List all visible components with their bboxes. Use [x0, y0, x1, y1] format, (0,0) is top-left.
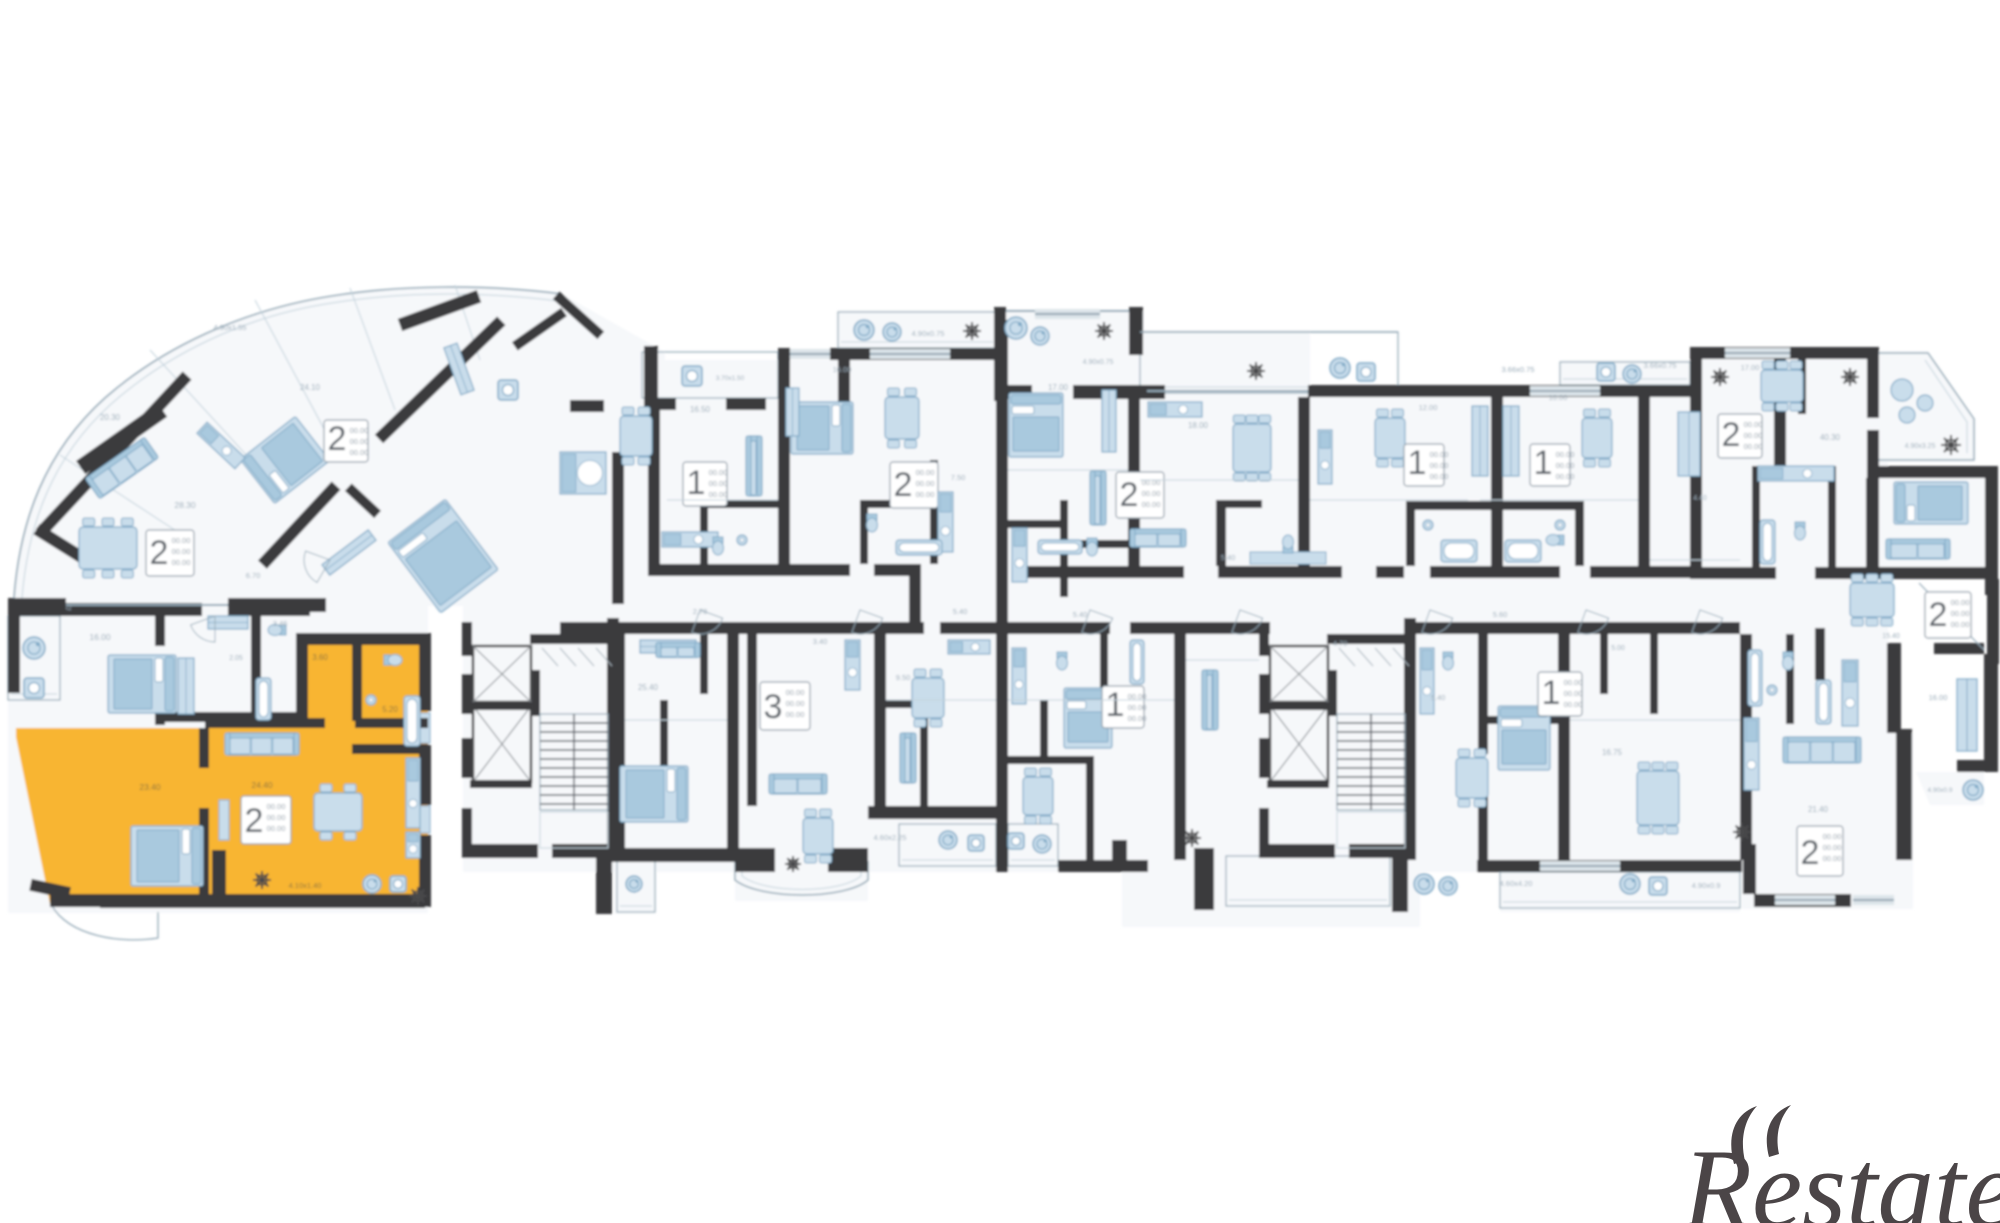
- svg-text:20.30: 20.30: [100, 413, 121, 422]
- svg-text:00.00: 00.00: [1951, 598, 1970, 607]
- svg-text:2: 2: [894, 466, 913, 504]
- svg-text:16.50: 16.50: [690, 405, 711, 414]
- svg-text:15.40: 15.40: [1882, 633, 1900, 640]
- svg-text:3.46: 3.46: [273, 619, 288, 628]
- svg-text:3.70x1.50: 3.70x1.50: [716, 375, 745, 382]
- svg-text:2: 2: [1120, 476, 1139, 514]
- svg-text:3.40: 3.40: [813, 637, 828, 646]
- svg-text:17.00: 17.00: [1048, 383, 1069, 392]
- svg-text:4.10x1.40: 4.10x1.40: [289, 881, 322, 890]
- svg-text:00.00: 00.00: [916, 490, 935, 499]
- svg-text:00.00: 00.00: [1823, 854, 1842, 863]
- svg-text:00.00: 00.00: [916, 468, 935, 477]
- svg-text:1: 1: [687, 464, 706, 502]
- svg-text:00.00: 00.00: [1430, 450, 1449, 459]
- svg-text:00.00: 00.00: [267, 802, 286, 811]
- svg-text:00.00: 00.00: [350, 437, 369, 446]
- svg-text:10.00: 10.00: [1549, 393, 1568, 402]
- svg-text:5.40: 5.40: [1431, 693, 1446, 702]
- svg-text:16.00: 16.00: [1929, 693, 1948, 702]
- svg-text:00.00: 00.00: [786, 688, 805, 697]
- svg-text:00.00: 00.00: [916, 479, 935, 488]
- svg-text:00.00: 00.00: [709, 468, 728, 477]
- svg-text:00.00: 00.00: [1564, 678, 1583, 687]
- svg-text:24.10: 24.10: [300, 383, 321, 392]
- svg-text:00.00: 00.00: [786, 699, 805, 708]
- svg-text:00.00: 00.00: [350, 448, 369, 457]
- svg-text:16.00: 16.00: [89, 632, 111, 642]
- svg-text:25.40: 25.40: [638, 683, 659, 692]
- svg-text:1: 1: [1106, 686, 1125, 724]
- svg-text:4.70: 4.70: [1333, 639, 1348, 648]
- svg-text:21.40: 21.40: [1808, 805, 1829, 814]
- svg-text:6.70: 6.70: [246, 571, 261, 580]
- svg-text:18.00: 18.00: [1188, 421, 1209, 430]
- svg-text:9.50: 9.50: [896, 673, 911, 682]
- svg-text:5.60: 5.60: [1493, 610, 1508, 619]
- svg-text:5.00: 5.00: [1611, 645, 1625, 652]
- svg-text:00.00: 00.00: [1556, 472, 1575, 481]
- svg-text:4.90x0.75: 4.90x0.75: [912, 329, 945, 338]
- svg-text:4.60x2.25: 4.60x2.25: [874, 833, 907, 842]
- svg-text:1: 1: [1542, 674, 1561, 712]
- svg-text:3: 3: [764, 688, 783, 726]
- svg-text:00.00: 00.00: [1142, 478, 1161, 487]
- svg-text:00.00: 00.00: [1142, 489, 1161, 498]
- svg-text:00.00: 00.00: [1556, 450, 1575, 459]
- svg-text:00.00: 00.00: [709, 490, 728, 499]
- svg-text:00.00: 00.00: [1951, 609, 1970, 618]
- svg-text:00.00: 00.00: [1744, 431, 1763, 440]
- svg-text:2: 2: [1929, 596, 1948, 634]
- svg-text:4.60x4.20: 4.60x4.20: [1500, 879, 1533, 888]
- svg-text:16.00: 16.00: [833, 365, 852, 374]
- svg-text:00.00: 00.00: [267, 813, 286, 822]
- svg-text:3.66x0.75: 3.66x0.75: [1502, 365, 1535, 374]
- svg-text:4.90x1.55: 4.90x1.55: [214, 323, 247, 332]
- svg-text:3.66x0.75: 3.66x0.75: [1644, 361, 1677, 370]
- svg-text:4.40: 4.40: [1693, 495, 1707, 502]
- svg-text:23.40: 23.40: [139, 782, 161, 792]
- svg-text:00.00: 00.00: [786, 710, 805, 719]
- svg-text:2.78: 2.78: [693, 607, 708, 616]
- svg-text:2: 2: [1801, 834, 1820, 872]
- svg-text:12.00: 12.00: [1419, 403, 1438, 412]
- svg-text:2: 2: [328, 420, 347, 458]
- svg-text:1: 1: [1534, 444, 1553, 482]
- svg-text:1: 1: [1408, 444, 1427, 482]
- svg-text:00.00: 00.00: [1744, 442, 1763, 451]
- svg-text:00.00: 00.00: [1430, 472, 1449, 481]
- svg-text:3.60: 3.60: [312, 653, 328, 662]
- svg-text:00.00: 00.00: [172, 558, 191, 567]
- svg-text:5.40: 5.40: [953, 607, 968, 616]
- svg-text:4.90x0.9: 4.90x0.9: [1692, 881, 1721, 890]
- svg-text:00.00: 00.00: [1128, 714, 1147, 723]
- svg-text:00.00: 00.00: [1430, 461, 1449, 470]
- svg-text:Restate: Restate: [1682, 1127, 2000, 1223]
- svg-text:00.00: 00.00: [350, 426, 369, 435]
- svg-text:00.00: 00.00: [1142, 500, 1161, 509]
- svg-text:00.00: 00.00: [709, 479, 728, 488]
- svg-text:00.00: 00.00: [1556, 461, 1575, 470]
- svg-text:00.00: 00.00: [1951, 620, 1970, 629]
- svg-text:4.90x3.25: 4.90x3.25: [1905, 443, 1936, 450]
- svg-text:5.40: 5.40: [1073, 610, 1088, 619]
- svg-text:17.00: 17.00: [1741, 363, 1760, 372]
- svg-text:2: 2: [1722, 416, 1741, 454]
- svg-text:00.00: 00.00: [1823, 843, 1842, 852]
- svg-text:00.00: 00.00: [1564, 700, 1583, 709]
- svg-text:00.00: 00.00: [1744, 420, 1763, 429]
- svg-text:24.40: 24.40: [251, 780, 273, 790]
- svg-text:7.50: 7.50: [951, 473, 966, 482]
- svg-text:00.00: 00.00: [1823, 832, 1842, 841]
- svg-text:16.75: 16.75: [1602, 748, 1623, 757]
- svg-text:2: 2: [245, 802, 264, 840]
- svg-text:28.30: 28.30: [174, 500, 196, 510]
- svg-text:4.90x0.75: 4.90x0.75: [1083, 359, 1114, 366]
- svg-text:00.00: 00.00: [172, 536, 191, 545]
- svg-text:2.05: 2.05: [229, 655, 243, 662]
- svg-text:00.00: 00.00: [1564, 689, 1583, 698]
- svg-text:5.40: 5.40: [1221, 553, 1236, 562]
- svg-text:5.20: 5.20: [382, 705, 398, 714]
- svg-text:40.30: 40.30: [1820, 433, 1841, 442]
- svg-text:00.00: 00.00: [267, 824, 286, 833]
- svg-text:2: 2: [150, 534, 169, 572]
- svg-text:00.00: 00.00: [172, 547, 191, 556]
- svg-text:4.90x0.9: 4.90x0.9: [1928, 787, 1953, 794]
- svg-text:00.00: 00.00: [1128, 703, 1147, 712]
